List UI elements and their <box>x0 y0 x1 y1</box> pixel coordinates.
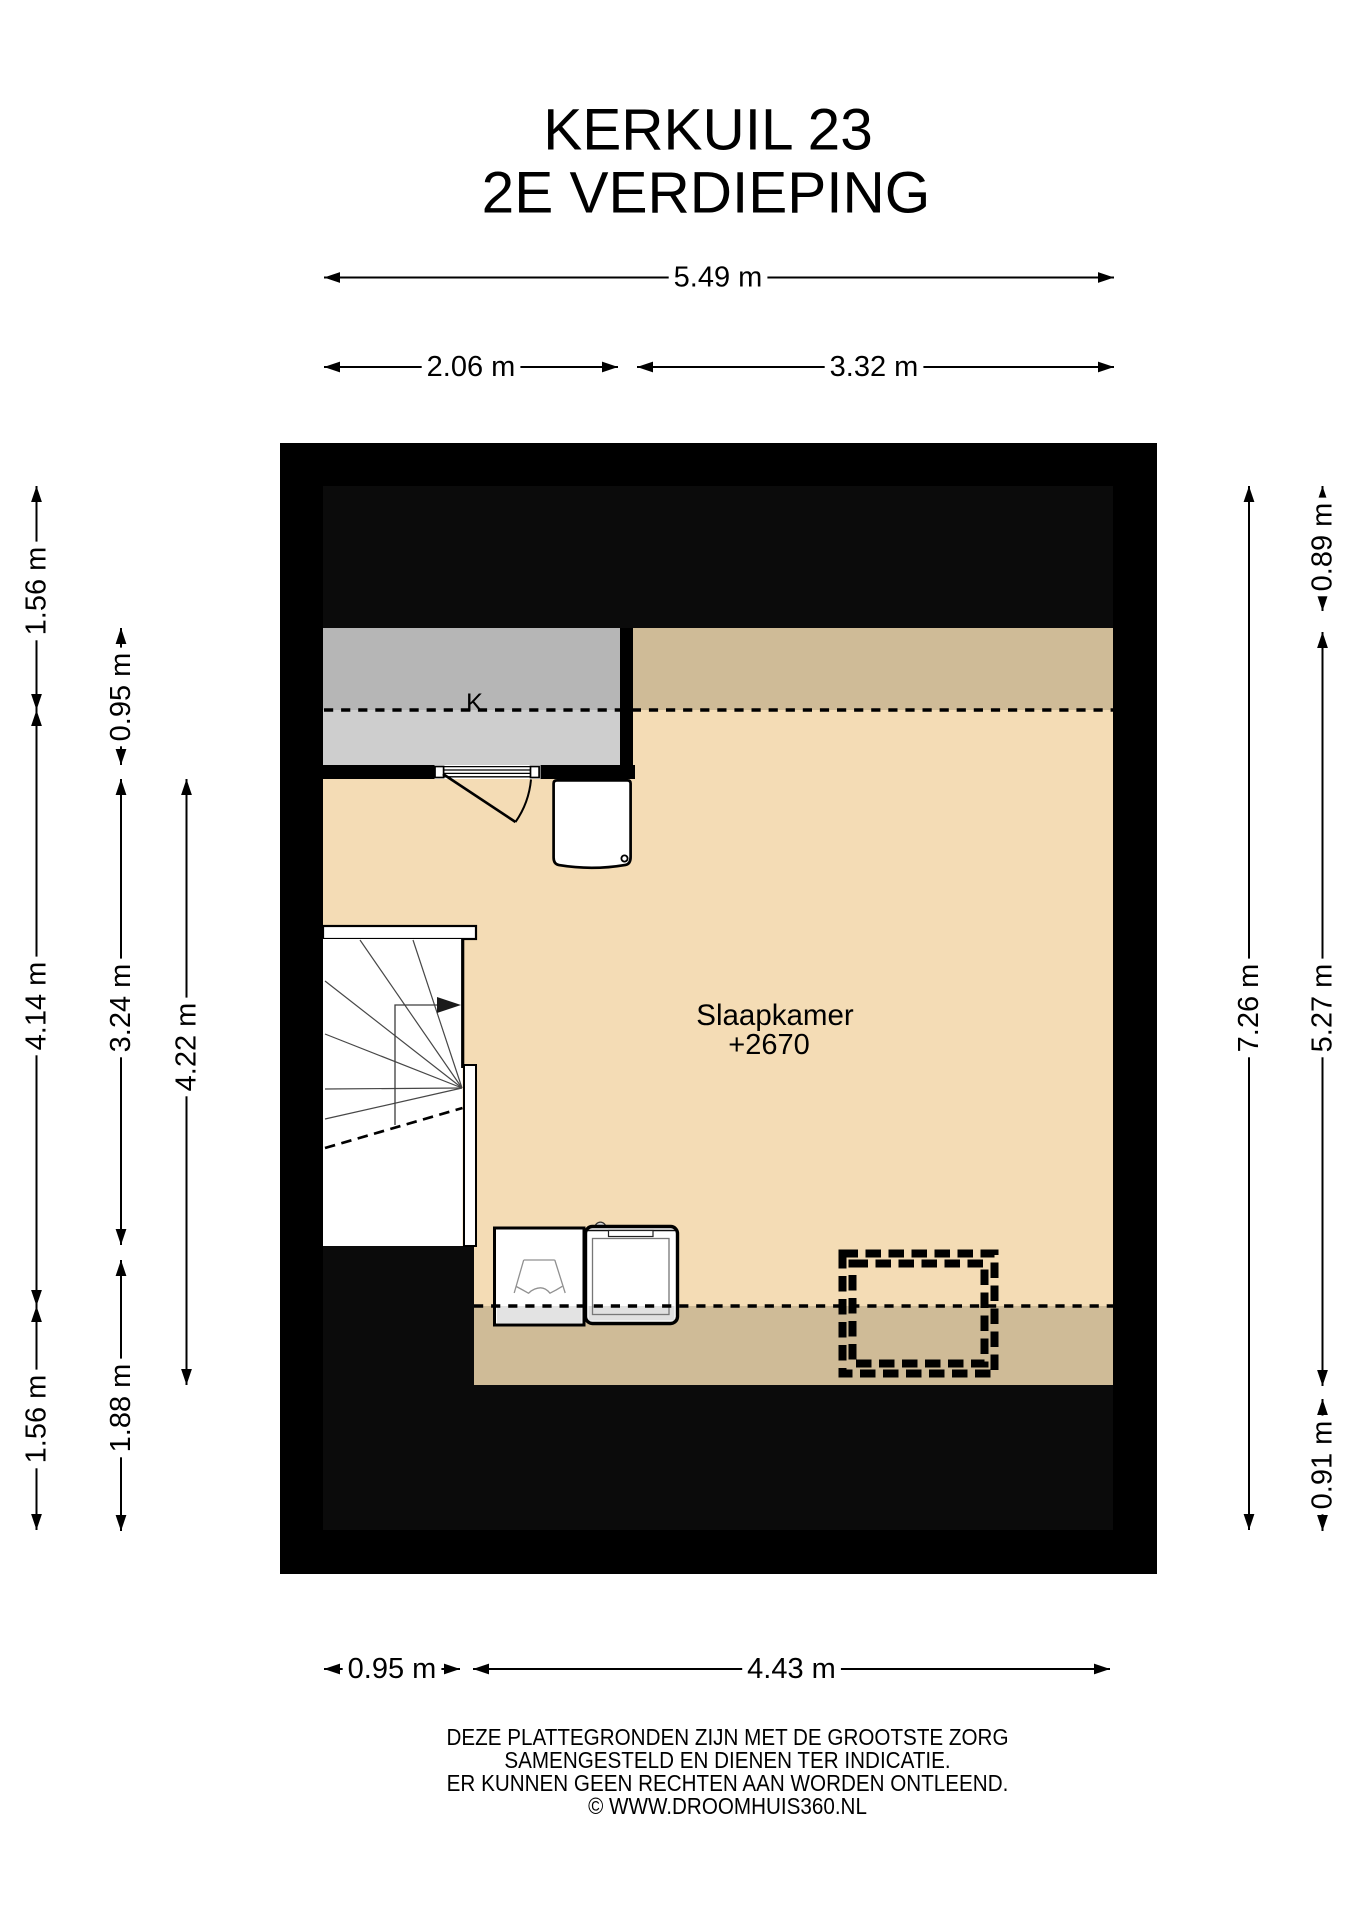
svg-text:1.56 m: 1.56 m <box>21 1375 53 1464</box>
svg-text:KERKUIL 23: KERKUIL 23 <box>543 98 873 163</box>
svg-text:0.95 m: 0.95 m <box>348 1653 437 1685</box>
svg-text:0.95 m: 0.95 m <box>105 653 137 742</box>
svg-text:4.14 m: 4.14 m <box>21 962 53 1051</box>
svg-text:3.32 m: 3.32 m <box>830 351 919 383</box>
svg-text:4.43 m: 4.43 m <box>747 1653 836 1685</box>
svg-text:1.88 m: 1.88 m <box>105 1364 137 1453</box>
svg-text:4.22 m: 4.22 m <box>171 1003 203 1092</box>
svg-text:1.56 m: 1.56 m <box>21 547 53 636</box>
svg-text:+2670: +2670 <box>728 1029 809 1061</box>
svg-text:© WWW.DROOMHUIS360.NL: © WWW.DROOMHUIS360.NL <box>588 1793 867 1820</box>
svg-text:0.89 m: 0.89 m <box>1307 503 1339 592</box>
svg-text:0.91 m: 0.91 m <box>1307 1421 1339 1510</box>
svg-text:7.26 m: 7.26 m <box>1233 964 1265 1053</box>
svg-text:Slaapkamer: Slaapkamer <box>696 999 854 1032</box>
svg-text:2.06 m: 2.06 m <box>427 351 516 383</box>
svg-text:5.49 m: 5.49 m <box>674 262 763 294</box>
svg-text:5.27 m: 5.27 m <box>1307 964 1339 1053</box>
svg-text:2E VERDIEPING: 2E VERDIEPING <box>482 161 931 226</box>
svg-text:K: K <box>466 690 483 718</box>
svg-text:3.24 m: 3.24 m <box>105 964 137 1053</box>
